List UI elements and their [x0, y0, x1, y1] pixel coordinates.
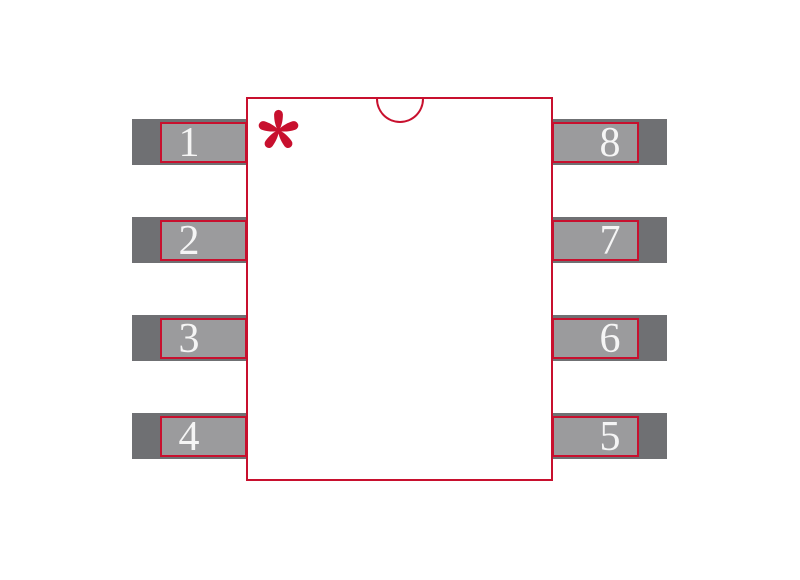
pad-2-number: 2: [132, 217, 246, 263]
pad-6-number: 6: [553, 315, 667, 361]
pad-8-number: 8: [553, 119, 667, 165]
pad-5-number: 5: [553, 413, 667, 459]
pad-4: 4: [132, 413, 246, 459]
pad-4-number: 4: [132, 413, 246, 459]
pad-3-number: 3: [132, 315, 246, 361]
pad-2: 2: [132, 217, 246, 263]
pad-1: 1: [132, 119, 246, 165]
pin1-asterisk-icon: [254, 106, 303, 155]
pad-7: 7: [553, 217, 667, 263]
footprint-canvas: 1 2 3 4 8 7 6 5: [0, 0, 800, 580]
pad-7-number: 7: [553, 217, 667, 263]
pad-6: 6: [553, 315, 667, 361]
pad-8: 8: [553, 119, 667, 165]
pad-3: 3: [132, 315, 246, 361]
pad-1-number: 1: [132, 119, 246, 165]
pad-5: 5: [553, 413, 667, 459]
